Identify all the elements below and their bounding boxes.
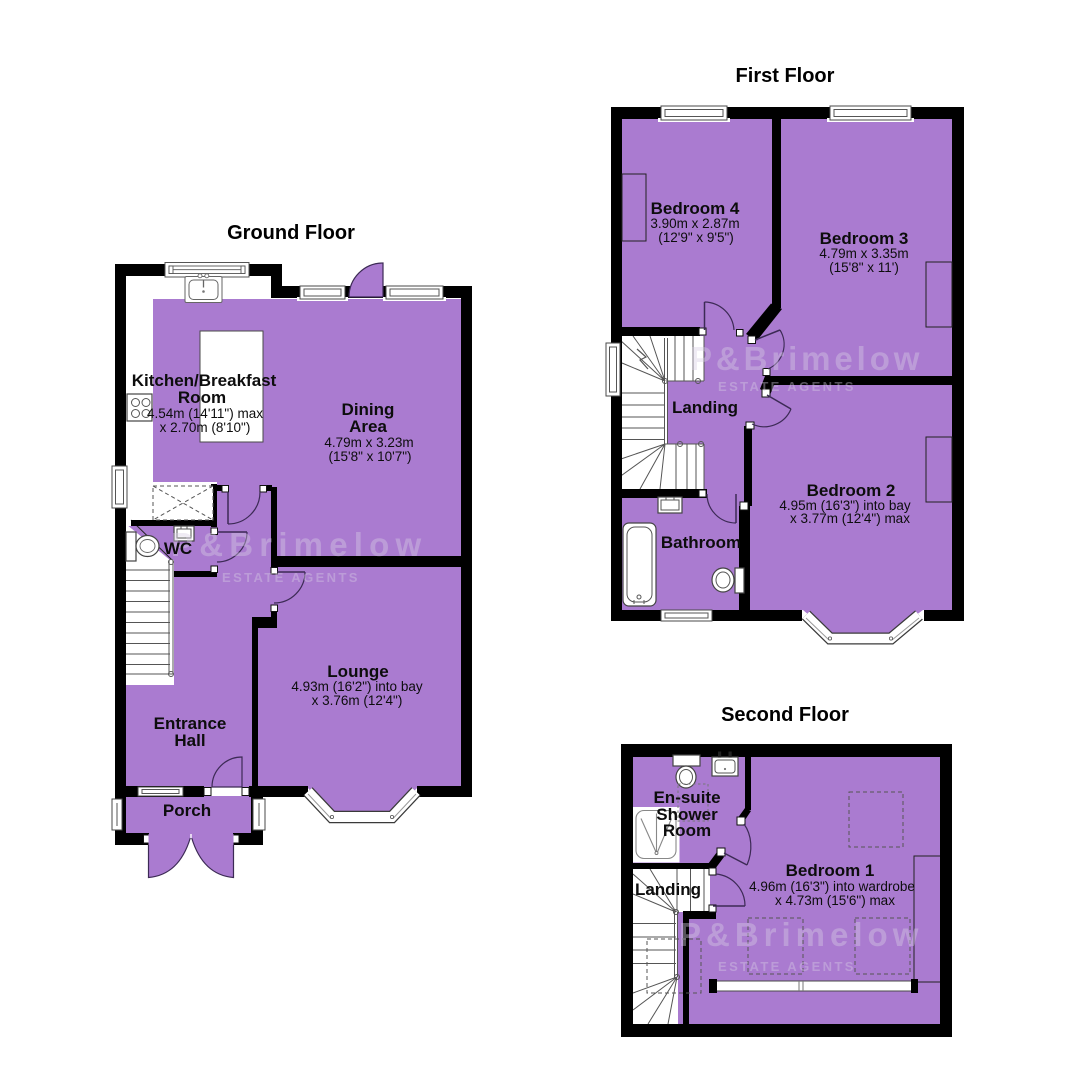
svg-text:P&Brimelow: P&Brimelow — [679, 916, 923, 953]
svg-text:ESTATE AGENTS: ESTATE AGENTS — [718, 959, 856, 974]
svg-text:Hall: Hall — [174, 731, 205, 750]
svg-text:3.90m x 2.87m: 3.90m x 2.87m — [650, 216, 739, 231]
svg-text:P&Brimelow: P&Brimelow — [171, 526, 427, 563]
svg-text:Room: Room — [663, 821, 711, 840]
svg-text:x 2.70m (8'10"): x 2.70m (8'10") — [160, 420, 251, 435]
svg-text:(15'8" x 10'7"): (15'8" x 10'7") — [328, 449, 411, 464]
svg-text:ESTATE AGENTS: ESTATE AGENTS — [718, 379, 856, 394]
svg-text:4.54m (14'11") max: 4.54m (14'11") max — [147, 406, 263, 421]
svg-text:(15'8" x 11'): (15'8" x 11') — [829, 260, 899, 275]
svg-text:P&Brimelow: P&Brimelow — [690, 340, 923, 377]
svg-text:x 3.77m (12'4") max: x 3.77m (12'4") max — [790, 511, 910, 526]
svg-text:Ground Floor: Ground Floor — [227, 222, 355, 244]
svg-text:x 4.73m (15'6") max: x 4.73m (15'6") max — [775, 893, 895, 908]
svg-text:First Floor: First Floor — [736, 65, 835, 87]
svg-text:Landing: Landing — [635, 880, 701, 899]
svg-text:Bathroom: Bathroom — [661, 533, 741, 552]
svg-text:Porch: Porch — [163, 801, 211, 820]
svg-text:Second Floor: Second Floor — [721, 704, 849, 726]
svg-text:(12'9" x 9'5"): (12'9" x 9'5") — [658, 230, 734, 245]
svg-text:Landing: Landing — [672, 398, 738, 417]
svg-text:Bedroom 1: Bedroom 1 — [786, 861, 875, 880]
svg-text:Room: Room — [178, 388, 226, 407]
svg-text:x 3.76m (12'4"): x 3.76m (12'4") — [312, 693, 403, 708]
svg-text:4.79m x 3.35m: 4.79m x 3.35m — [819, 246, 908, 261]
svg-text:4.93m (16'2") into bay: 4.93m (16'2") into bay — [291, 679, 422, 694]
svg-text:Area: Area — [349, 417, 387, 436]
svg-text:4.96m (16'3") into wardrobe: 4.96m (16'3") into wardrobe — [749, 879, 915, 894]
svg-text:WC: WC — [164, 539, 192, 558]
svg-text:ESTATE AGENTS: ESTATE AGENTS — [222, 570, 360, 585]
svg-text:4.79m x 3.23m: 4.79m x 3.23m — [324, 435, 413, 450]
